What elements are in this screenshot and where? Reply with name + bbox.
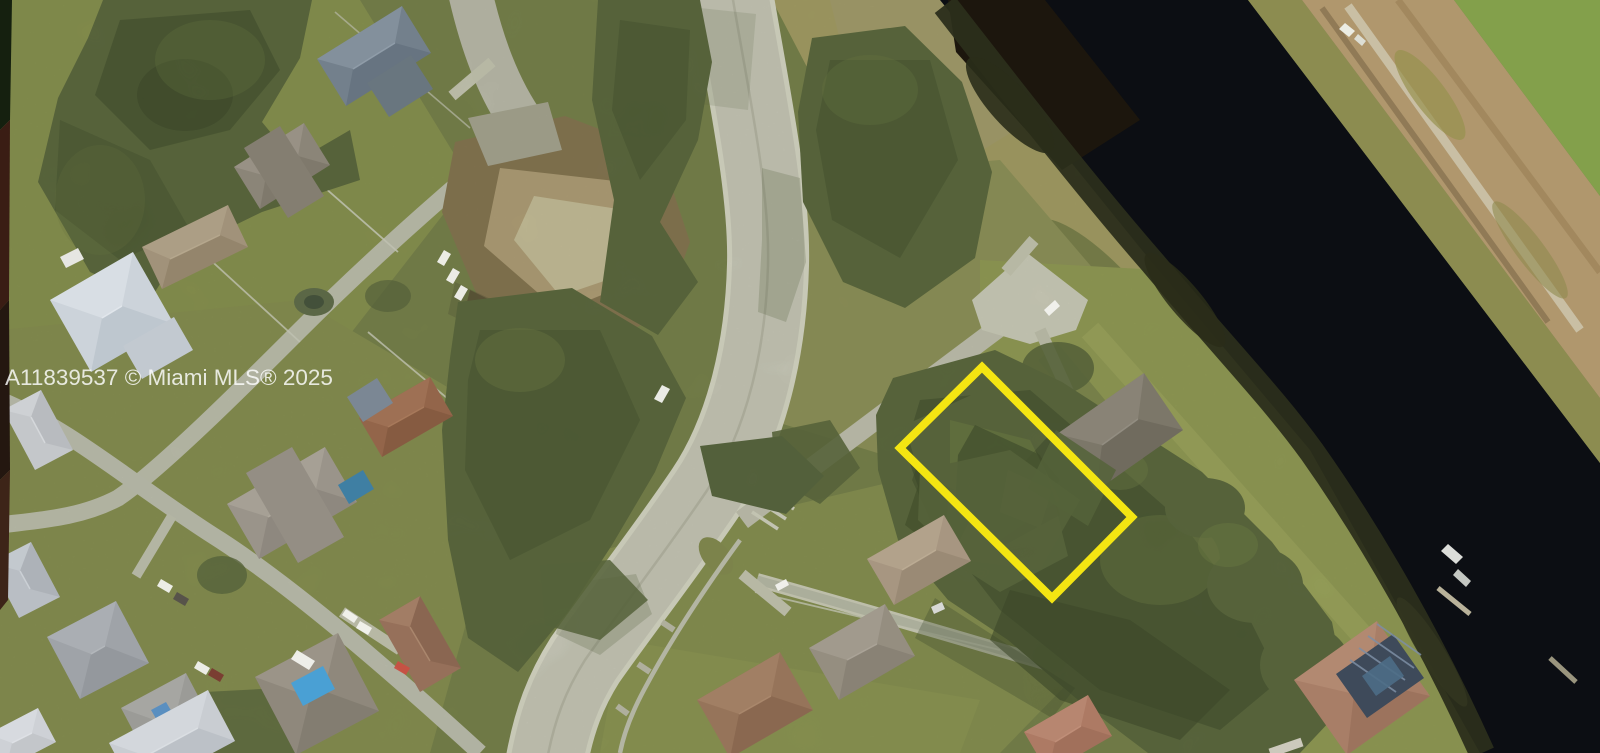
- svg-text:A11839537 © Miami MLS® 2025: A11839537 © Miami MLS® 2025: [5, 365, 333, 390]
